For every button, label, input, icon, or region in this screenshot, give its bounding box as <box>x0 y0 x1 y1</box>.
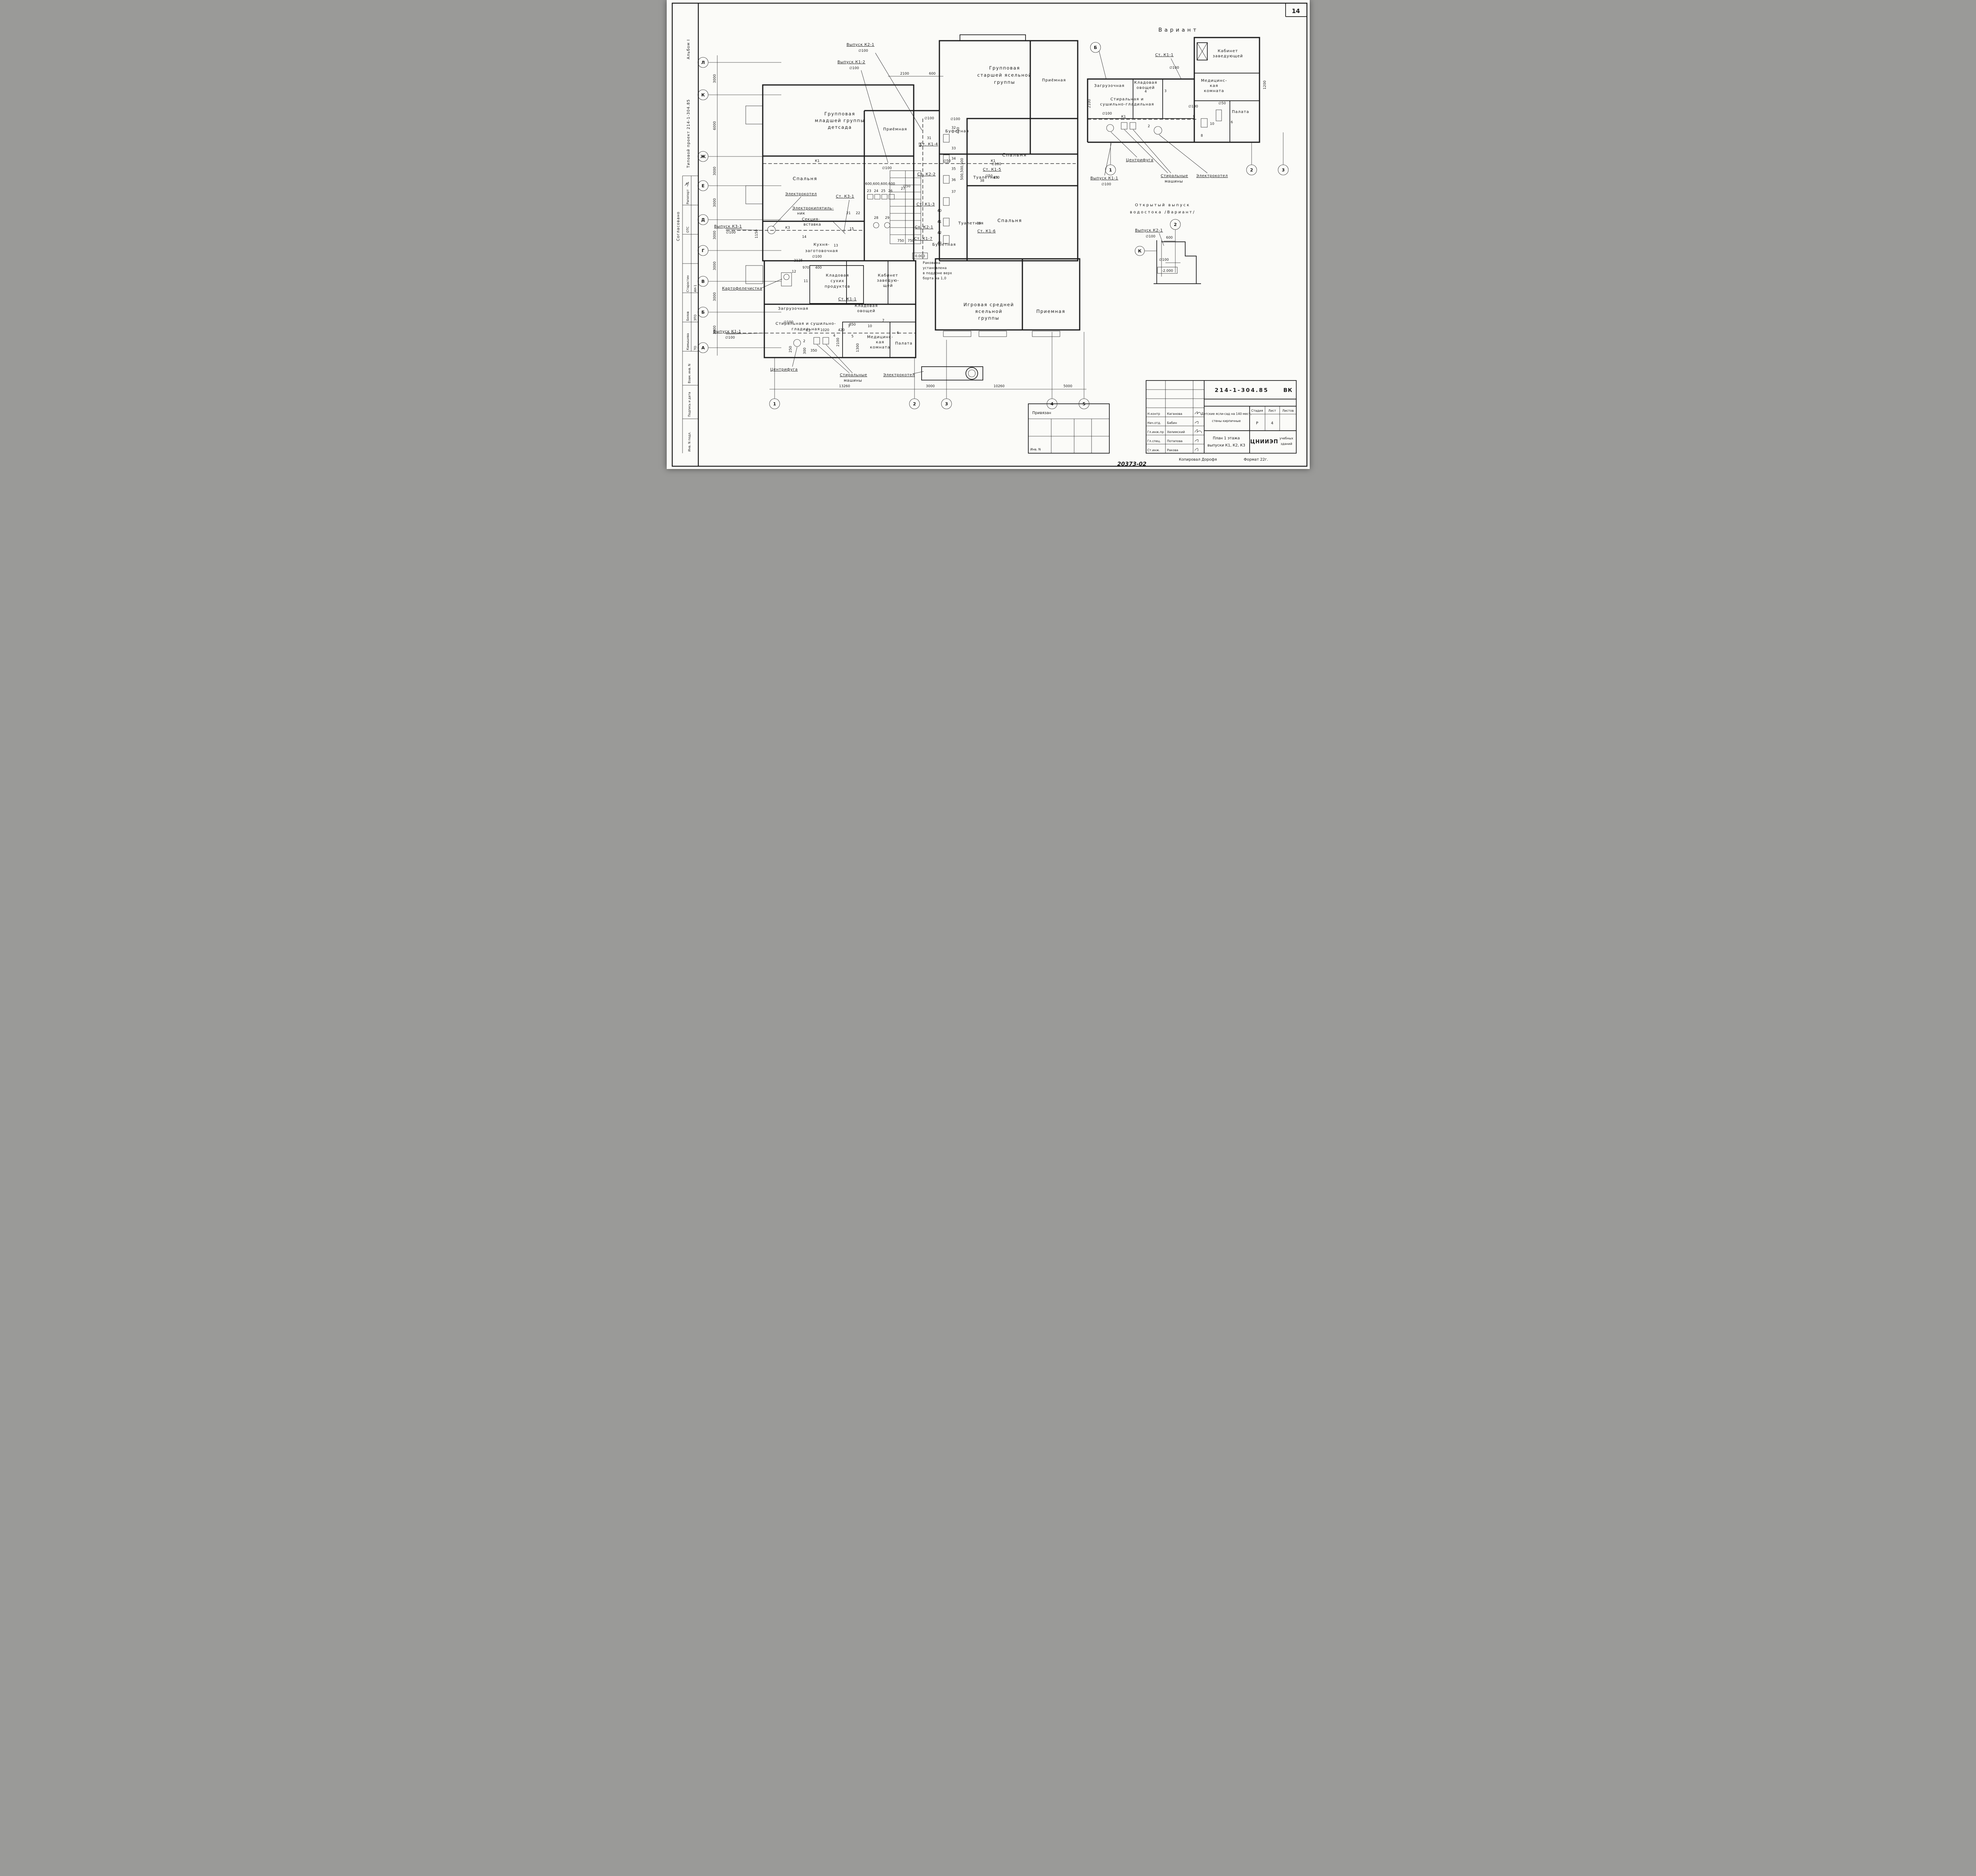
room-label: Игровая средней <box>963 302 1014 307</box>
dim-label: 600 <box>1166 236 1173 240</box>
dim-label: 750 <box>907 239 914 243</box>
outlet-label-k2-1: Выпуск К2-1 <box>1135 228 1163 233</box>
axis-circles-left: Л К Ж Е Д Г В Б А <box>698 57 708 353</box>
room-label: Палата <box>895 341 912 346</box>
equip-number: 3 <box>848 324 850 328</box>
stack-label: Ст. К1-7 <box>914 237 933 241</box>
outlet-dia: ∅100 <box>725 336 735 340</box>
equip-number: 27 <box>901 187 905 191</box>
room-label: детсада <box>828 124 852 130</box>
outlet-label-k3-1: Выпуск К3-1 <box>714 224 742 229</box>
approver-name: Рапопорт <box>686 189 690 204</box>
room-label: щей <box>883 284 893 288</box>
approver-name: Старостин <box>686 275 690 292</box>
role-name: Потапова <box>1167 439 1182 443</box>
room-label: Кладовая <box>1134 81 1157 85</box>
equip-number: 9 <box>1193 115 1195 119</box>
approver-dept: ЭТО <box>694 315 697 321</box>
dim-label: 3000 <box>713 166 717 175</box>
dim-label: 10260 <box>994 384 1005 388</box>
axis-letter: Б <box>701 310 704 315</box>
room-label: продуктов <box>824 284 850 289</box>
dim-label: 600 <box>929 72 935 76</box>
dim-label: 1150 <box>755 229 759 238</box>
bottom-axes: 1 2 3 4 5 13260 3000 10260 5000 <box>769 332 1089 409</box>
document-number: 20373-02 <box>1117 461 1146 467</box>
equip-number: 13 <box>833 244 838 248</box>
object-name: стены кирпичные <box>1212 419 1241 423</box>
room-label: заведую- <box>877 279 899 283</box>
axis-letter: К <box>1138 249 1141 254</box>
axis-letter: К <box>701 92 705 98</box>
dim-label: 750 <box>897 239 904 243</box>
approver-dept: АН-1 <box>694 284 697 292</box>
approver-name: Камышева <box>686 333 690 350</box>
sheets-label: Листов <box>1282 409 1294 412</box>
equip-number: 6 <box>1231 121 1233 124</box>
approver-name: Белов <box>686 311 690 321</box>
axis-letter: В <box>701 279 704 284</box>
dim-label: 3000 <box>713 261 717 270</box>
dim-label: 3000 <box>713 230 717 239</box>
room-label: Буфетная <box>932 243 956 247</box>
copied-by: Копировал Дорофя <box>1179 458 1217 462</box>
sink-note: Раковина <box>923 261 941 265</box>
room-label: Загрузочная <box>1094 84 1124 88</box>
room-label: Групповая <box>989 65 1020 71</box>
room-label: Спальня <box>792 176 817 181</box>
stack-label: Ст. К1-3 <box>916 202 935 207</box>
equip-number: 42 <box>937 231 941 235</box>
dim-label: 3000 <box>713 74 717 83</box>
role-label: Нач.отд. <box>1147 421 1161 425</box>
axis-letter: Д <box>701 217 705 222</box>
equip-number: 36 <box>951 178 956 182</box>
role-label: Гл.инж.пр <box>1147 430 1164 434</box>
room-label: Кабинет <box>878 273 898 278</box>
dia-label: ∅100 <box>1159 258 1169 262</box>
organization-name: зданий <box>1280 442 1292 446</box>
dim-label: 400 <box>956 127 960 134</box>
left-axes: Л К Ж Е Д Г В Б А 3000 6000 3000 3000 30… <box>698 55 781 356</box>
outlet-label-k2-1: Выпуск К2-1 <box>847 43 875 47</box>
outlet-callouts: Выпуск К3-1 ∅100 Выпуск К1-1 ∅100 Выпуск… <box>713 43 943 340</box>
dim-label: 420 <box>838 328 845 332</box>
room-label: сухих <box>830 279 844 283</box>
pipe-label-k3: К3 <box>785 226 790 230</box>
equip-label-boiler: Электрокотел <box>785 192 817 196</box>
outlet-dia: ∅100 <box>1146 235 1156 239</box>
equip-number: 31 <box>927 136 931 140</box>
dim-label: 300 <box>803 347 807 354</box>
room-label: гладильная <box>791 327 820 332</box>
dim-label: 3000 <box>713 198 717 207</box>
role-name: Бабин <box>1167 421 1177 425</box>
sanitary-fixtures <box>767 134 983 380</box>
equip-number: 7 <box>882 319 884 323</box>
stack-label: Ст. К1-1 <box>838 297 857 301</box>
dia-label: ∅100 <box>1102 112 1112 116</box>
equip-number: 2 <box>803 339 805 343</box>
room-label: кая <box>1210 84 1218 88</box>
dim-label: 1300 <box>856 343 860 352</box>
dia-label: ∅50 <box>1218 102 1226 105</box>
outlet-label-k1-1: Выпуск К1-1 <box>713 330 741 334</box>
sheet-title: выпуски К1, К2, К3 <box>1207 443 1245 448</box>
axis-number: 3 <box>945 401 948 407</box>
dia-label: ∅50 <box>943 159 951 163</box>
organization-name: учебных <box>1279 437 1293 440</box>
stamp-field: Подпись и дата <box>688 392 691 417</box>
sewer-lines: К1 К1 К1 К2 К3 <box>726 119 1076 333</box>
page-number: 14 <box>1292 8 1300 15</box>
equipment-numbers: 23 24 25 26 27 21 22 28 29 31 32 33 34 3… <box>792 126 984 343</box>
outlet-dia: ∅100 <box>849 66 859 70</box>
sink-note: борта на 1,0 <box>923 276 947 280</box>
role-name: Каганова <box>1167 412 1182 416</box>
room-label: Кладовая <box>854 304 878 308</box>
axis-dims-left: 3000 6000 3000 3000 3000 3000 3000 3000 <box>713 74 717 334</box>
project-code: 214-1-304.85 <box>1214 387 1269 394</box>
equip-label-peeler: Картофелечистка <box>722 286 762 291</box>
binding-label: Привязан <box>1032 411 1051 415</box>
room-label: комната <box>1204 89 1224 93</box>
room-label: Спальня <box>1002 152 1026 158</box>
detail-section-walls <box>1154 240 1201 284</box>
drawing-sheet: 14 Альбом I Типовой проект 214-1-304.85 … <box>667 0 1310 469</box>
variant-title: Вариант <box>1158 27 1199 33</box>
equip-number: 21 <box>846 211 850 215</box>
equip-label-centrifuge: Центрифуга <box>1126 158 1154 162</box>
detail-title: водостока /Вариант/ <box>1130 210 1195 215</box>
dim-label: 400 <box>815 266 822 270</box>
storm-outlet-detail: Открытый выпуск водостока /Вариант/ 2 Вы… <box>1130 203 1201 284</box>
equip-number: 35 <box>951 167 956 171</box>
dia-label: ∅100 <box>992 162 1001 166</box>
dim-label: 5000 <box>1063 384 1072 388</box>
dim-label: 850 <box>849 323 856 327</box>
dia-label: ∅100 <box>784 320 794 324</box>
room-label: заведующей <box>1212 54 1243 58</box>
approver-dept: ТО <box>694 346 697 350</box>
room-label: Приемная <box>1036 309 1065 314</box>
stack-label: Ст. К1-6 <box>977 229 996 234</box>
sink-note: в поддоне верх <box>923 271 952 275</box>
equip-number: 4 <box>833 334 835 338</box>
elevation-label: -2.000 <box>1161 269 1173 273</box>
agreed-label: Согласовано <box>676 211 681 241</box>
room-label: группы <box>978 315 999 321</box>
axis-letter: А <box>701 345 705 350</box>
equip-label-washers: машины <box>1165 179 1183 184</box>
axis-letter: Г <box>701 248 704 253</box>
sheet-title: План 1 этажа <box>1212 436 1239 441</box>
inventory-label: Инв. N <box>1030 448 1041 451</box>
equip-number: 10 <box>867 324 872 328</box>
dim-label: 3000 <box>926 384 935 388</box>
outlet-dia: ∅100 <box>858 49 868 53</box>
role-label: Гл.спец. <box>1147 439 1161 443</box>
dim-label: 2100 <box>1088 99 1092 108</box>
axis-letter: Л <box>701 60 705 65</box>
stamp-field: Взам. инв. N <box>688 364 691 383</box>
equip-number: 40 <box>937 209 941 213</box>
equip-number: 15 <box>849 227 854 231</box>
role-label: Н.контр <box>1147 412 1160 416</box>
signature-squiggle <box>1195 412 1202 451</box>
room-label: Кладовая <box>826 273 849 278</box>
room-label: Кабинет <box>1218 49 1238 53</box>
stack-label: Ст. К1-1 <box>1155 53 1174 57</box>
dia-label: ∅100 <box>812 255 822 259</box>
equip-number: 11 <box>803 279 808 283</box>
equip-number: 6 <box>897 331 899 335</box>
dim-label: 2100 <box>900 72 909 76</box>
room-label: группы <box>994 79 1015 85</box>
stack-label: Ст. К1-4 <box>920 142 938 147</box>
equip-number: 38 <box>980 179 984 183</box>
equip-number: 26 <box>888 189 892 193</box>
equip-number: 14 <box>802 235 806 239</box>
room-label: Медицинс- <box>867 335 893 339</box>
title-block: Привязан Инв. N 214-1-304.85 ВК Детские … <box>1028 380 1296 467</box>
room-label: Приёмная <box>1042 78 1066 83</box>
equip-label-boiler2: Электрокотел <box>883 373 915 377</box>
axis-letter: Ж <box>700 154 706 159</box>
room-label: Стиральная и <box>1110 97 1143 102</box>
outlet-label-k1-2: Выпуск К1-2 <box>837 60 865 64</box>
sheet-value: 4 <box>1271 421 1273 426</box>
dia-label: ∅100 <box>1188 105 1198 109</box>
equip-number: 33 <box>951 147 956 151</box>
equip-label-section: Секция- <box>802 217 820 222</box>
role-name: Ракова <box>1167 448 1178 452</box>
stamp-field: Инв. N подл. <box>688 432 691 452</box>
dia-label: ∅100 <box>950 117 960 121</box>
stairs-icon <box>890 171 921 244</box>
equip-number: 24 <box>874 189 878 193</box>
equip-number: 22 <box>856 211 860 215</box>
dim-label: 1020 <box>820 328 829 332</box>
axis-row-lines <box>708 62 781 348</box>
signature-squiggle <box>685 182 689 186</box>
axis-letter: Е <box>701 183 705 188</box>
room-label: сушильно-гладильная <box>1100 102 1154 107</box>
equip-number: 3 <box>1164 89 1166 93</box>
stack-label: Ст. К1-5 <box>983 168 1001 172</box>
equip-number: 43 <box>937 241 941 245</box>
axis-number: 2 <box>1250 168 1253 173</box>
equip-number: 41 <box>937 220 941 224</box>
plan-dimensions: 2125 970 400 1150 600,600,600,600 750 75… <box>755 117 1001 354</box>
floor-plan-drawing: 14 Альбом I Типовой проект 214-1-304.85 … <box>667 0 1310 469</box>
equip-label-boiler: Электрокотел <box>1196 174 1228 178</box>
room-label: ясельной <box>975 309 1002 314</box>
room-label: Групповая <box>824 111 855 117</box>
dia-label: ∅100 <box>924 117 934 121</box>
dim-label: 6000 <box>713 121 717 130</box>
equip-label-washers: Стиральные <box>840 373 867 377</box>
room-label: Спальня <box>997 218 1022 223</box>
room-label: кая <box>876 340 884 345</box>
axis-number: 3 <box>1282 168 1285 173</box>
pipe-label-k1: К1 <box>1121 115 1126 119</box>
dim-label: 13260 <box>839 384 850 388</box>
room-label: Приёмная <box>883 127 907 132</box>
room-label: старшей ясельной <box>977 72 1031 78</box>
equip-label-heater: ник <box>797 211 805 216</box>
equip-number: 12 <box>792 270 796 274</box>
axis-number: 2 <box>913 401 916 407</box>
dim-label: 3000 <box>713 292 717 301</box>
equip-label-heater: Электрокипятиль- <box>792 206 834 211</box>
axis-letter: Б <box>1094 45 1097 50</box>
axis-number: 2 <box>1174 222 1177 227</box>
sink-note: установлена <box>923 266 947 270</box>
dim-label: 600,600,600,600 <box>865 182 895 186</box>
equip-number: 5 <box>851 335 853 339</box>
equip-label-washers: машины <box>844 379 862 383</box>
sheet-label: Лист <box>1268 409 1276 412</box>
dim-label: 450 <box>993 176 999 180</box>
equip-label-section: вставка <box>803 222 821 227</box>
approver-dept: ОТС <box>686 226 690 233</box>
pipe-label-k1: К1 <box>815 159 820 163</box>
room-label: заготовочная <box>805 249 838 253</box>
dim-label: 1200 <box>1263 80 1267 89</box>
outlet-dia: ∅100 <box>1101 183 1111 186</box>
outlet-dia: ∅100 <box>726 231 736 235</box>
dim-label: 970 <box>802 266 809 270</box>
stack-label: Ст. К3-1 <box>836 194 854 199</box>
dia-label: ∅50 <box>985 174 993 178</box>
equip-number: 10 <box>1210 122 1214 126</box>
outlet-label-k1-1: Выпуск К1-1 <box>1090 176 1118 181</box>
role-name: Хелимский <box>1167 430 1185 434</box>
object-name: Детские ясли-сад на 140 мест, <box>1201 412 1251 416</box>
stack-label: Ст. К2-1 <box>915 225 933 230</box>
variant-plan: Вариант Б К1 Загрузочная Кладо <box>1088 27 1288 186</box>
room-label: Палата <box>1231 110 1249 114</box>
stage-label: Стадия <box>1251 409 1263 412</box>
equip-number: 28 <box>874 216 878 220</box>
equip-number: 23 <box>867 189 871 193</box>
equip-number: 4 <box>1144 90 1146 94</box>
dia-label: ∅100 <box>1169 66 1179 70</box>
room-label: Кухня- <box>813 243 830 247</box>
equip-number: 8 <box>1201 134 1203 138</box>
variant-fixtures <box>1107 110 1222 134</box>
equip-number: 32 <box>951 126 956 130</box>
album-label: Альбом I <box>686 39 691 59</box>
equip-number: 25 <box>881 189 885 193</box>
stack-label: Ст. К2-2 <box>917 172 936 177</box>
section-mark: ВК <box>1283 387 1292 394</box>
dim-label: 500,500,500 <box>960 158 964 180</box>
axis-number: 1 <box>773 401 776 407</box>
equip-label-washers: Стиральные <box>1161 174 1188 178</box>
equip-label-centrifuge: Центрифуга <box>770 367 798 372</box>
left-stamp-strip: Альбом I Типовой проект 214-1-304.85 Сог… <box>676 39 698 453</box>
dim-label: 350 <box>810 349 817 353</box>
room-label: младшей группы <box>815 118 864 123</box>
stage-value: Р <box>1256 421 1258 426</box>
room-label: Загрузочная <box>778 307 808 311</box>
dim-label: 2100 <box>836 337 840 347</box>
project-label: Типовой проект 214-1-304.85 <box>686 99 691 168</box>
detail-title: Открытый выпуск <box>1135 203 1190 207</box>
equip-number: 34 <box>951 157 956 161</box>
dim-label: 250 <box>789 346 793 352</box>
dim-label: 2125 <box>794 259 802 263</box>
role-label: Ст.инж. <box>1147 448 1160 452</box>
room-label: комната <box>870 345 890 350</box>
equip-number: 39 <box>977 222 981 226</box>
equip-number: 2 <box>1148 124 1150 128</box>
room-label: Медицинс- <box>1201 79 1227 83</box>
equip-number: 29 <box>885 216 889 220</box>
format-label: Формат 22г. <box>1244 458 1268 462</box>
organization-name: ЦНИИЭП <box>1250 439 1278 445</box>
dia-label: ∅100 <box>882 166 892 170</box>
axis-number: 1 <box>1109 168 1112 173</box>
elevation-label: 0.000 <box>915 254 925 258</box>
equip-number: 37 <box>951 190 956 194</box>
room-label: овощей <box>857 309 875 313</box>
